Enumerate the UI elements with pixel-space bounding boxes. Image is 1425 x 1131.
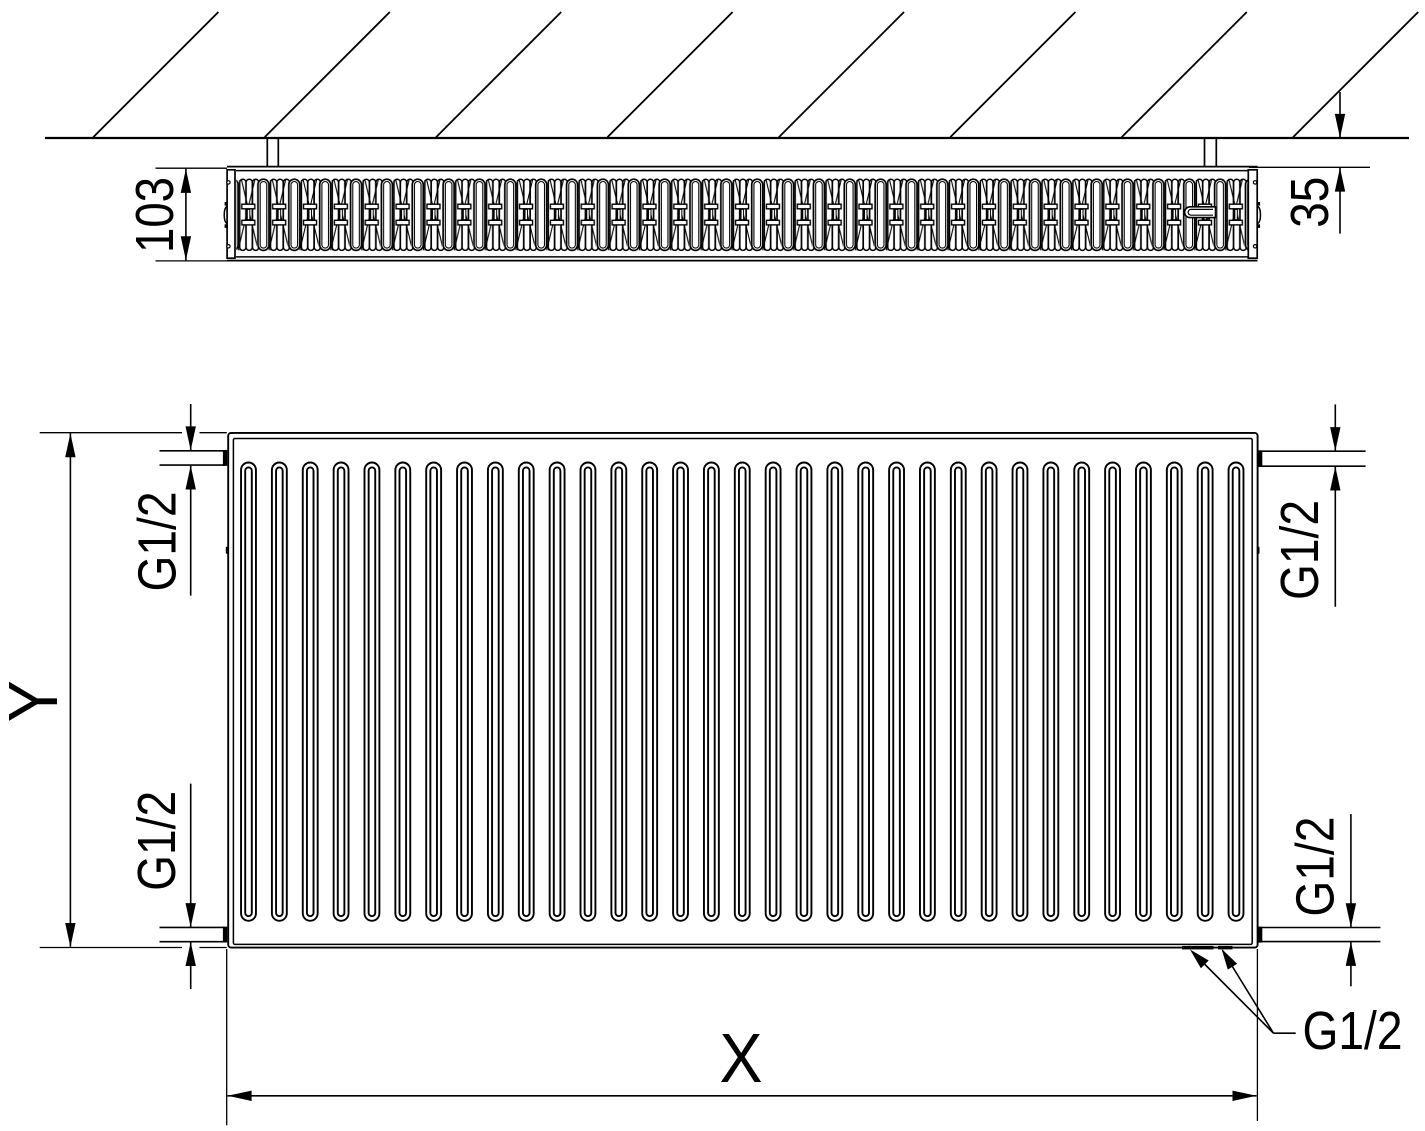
svg-text:G1/2: G1/2 [1270,500,1330,600]
svg-text:35: 35 [1280,177,1340,228]
svg-text:G1/2: G1/2 [127,791,187,891]
svg-text:Y: Y [0,680,72,722]
svg-text:103: 103 [125,177,185,253]
svg-text:G1/2: G1/2 [127,492,187,592]
svg-text:G1/2: G1/2 [1285,817,1345,917]
svg-text:G1/2: G1/2 [1303,1001,1403,1061]
svg-text:X: X [720,1019,763,1097]
